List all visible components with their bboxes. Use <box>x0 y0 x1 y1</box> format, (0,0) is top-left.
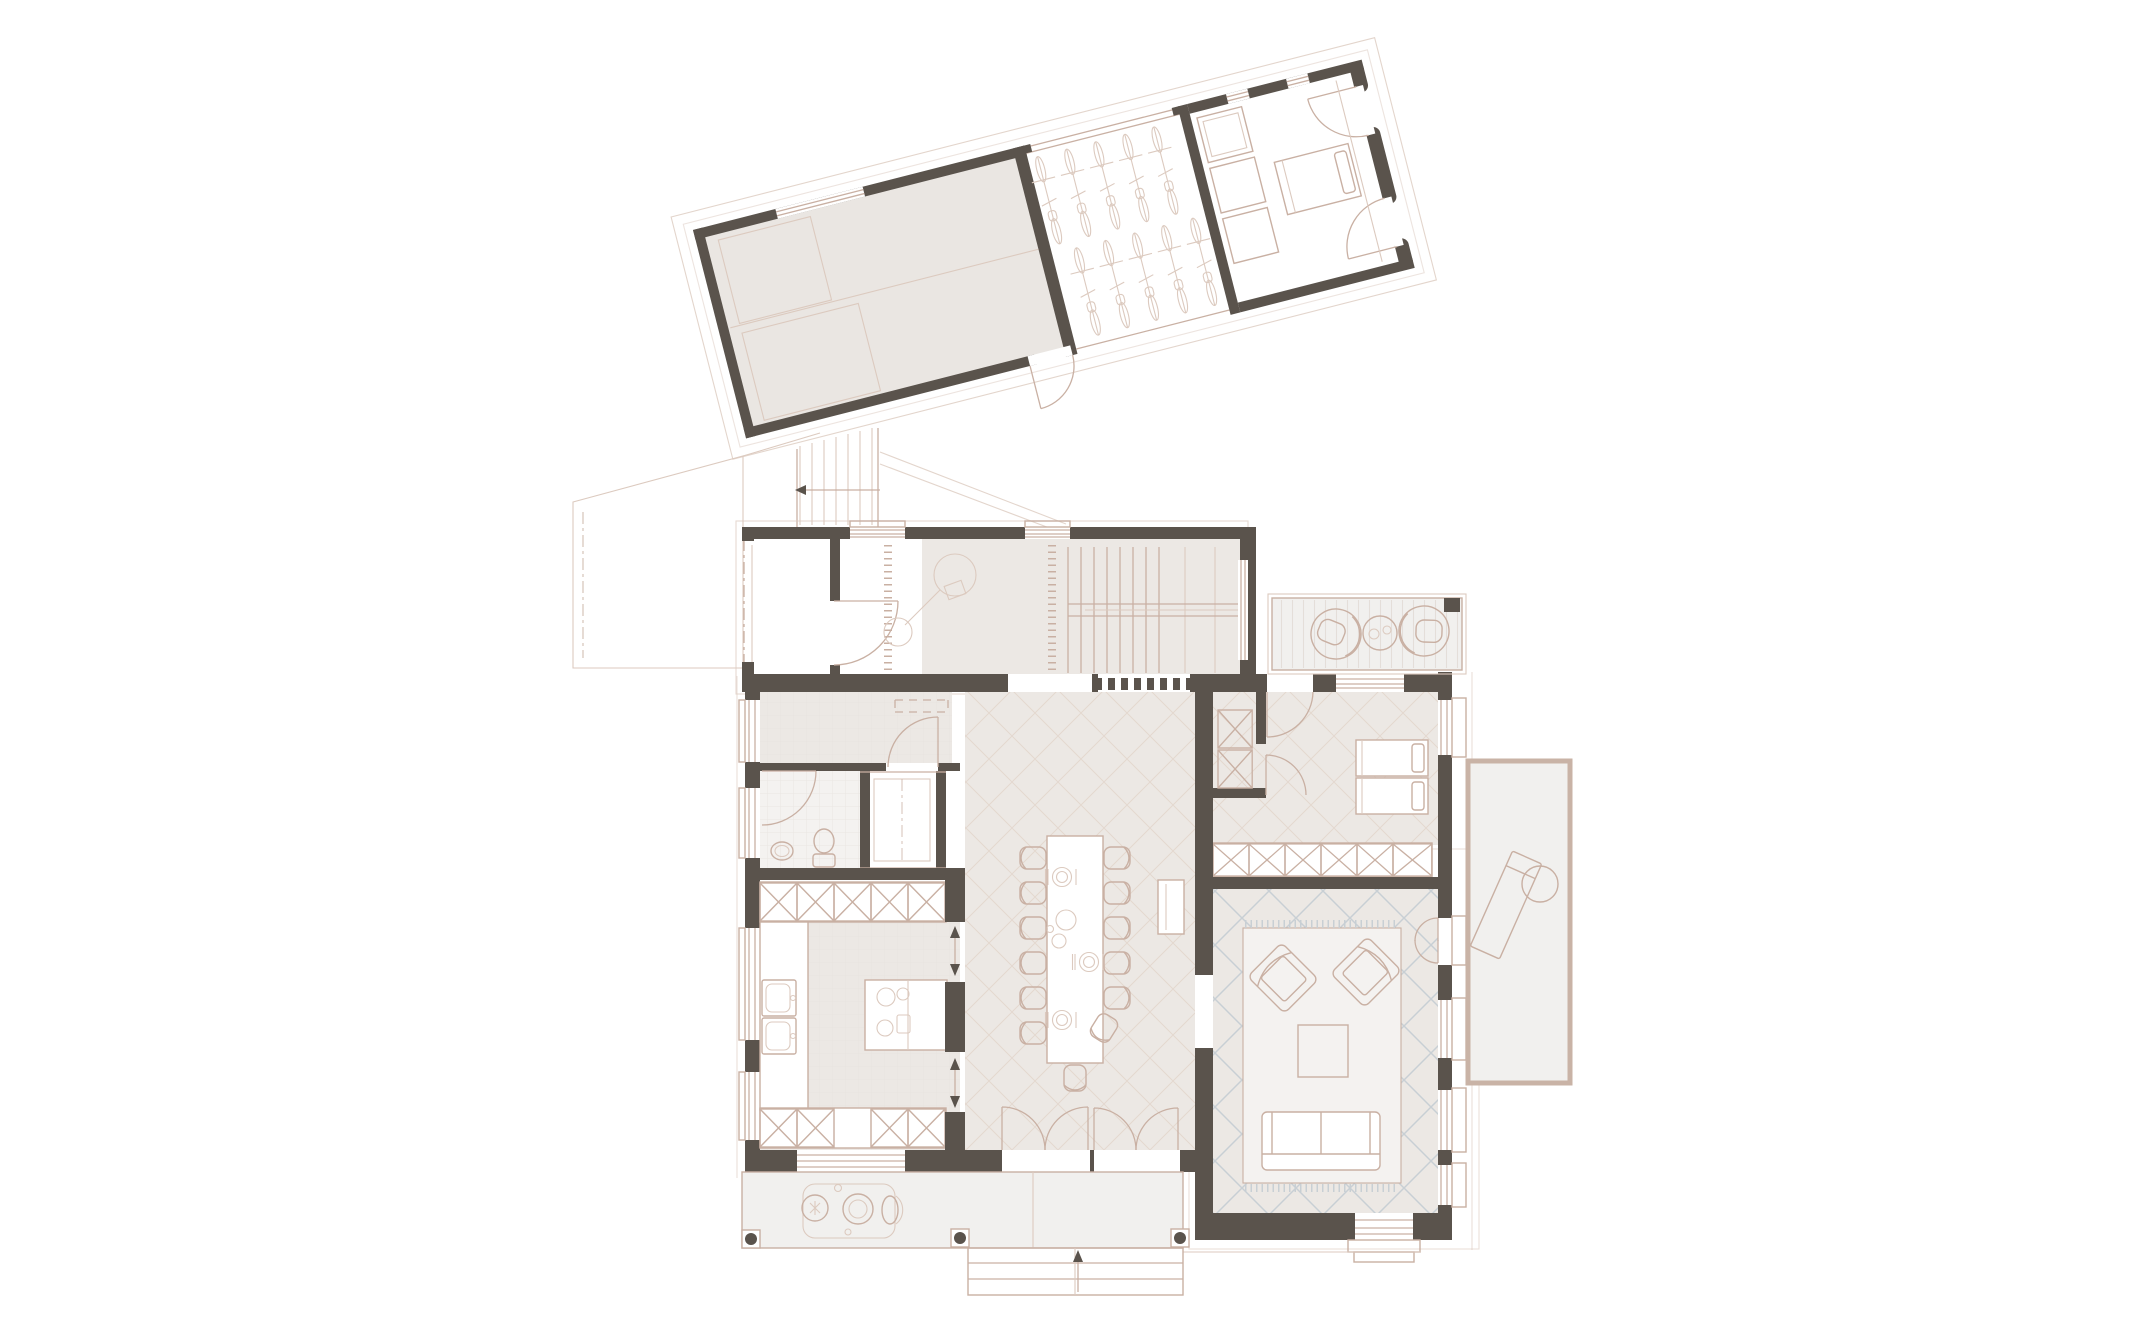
south-veranda <box>742 1172 1189 1295</box>
veranda-steps <box>968 1248 1183 1295</box>
bicycle <box>1084 139 1129 232</box>
shelf <box>1223 207 1279 263</box>
bicycle <box>1113 131 1158 224</box>
technical-shaft <box>860 771 946 869</box>
dining-hall <box>965 692 1195 1150</box>
base-cabinet-row <box>760 1108 946 1148</box>
cooking-island <box>865 980 947 1050</box>
bicycle <box>1055 146 1100 239</box>
floor-plan-page <box>0 0 2143 1337</box>
living-room <box>1183 889 1452 1262</box>
northeast-deck <box>1268 594 1466 674</box>
bicycle <box>1123 230 1168 323</box>
entry-porch <box>742 527 830 676</box>
living-room-steps <box>1348 1240 1420 1262</box>
bicycle <box>1152 223 1197 316</box>
radiator-console <box>1158 880 1184 934</box>
wardrobe-row <box>1213 843 1432 877</box>
exterior-stair <box>795 428 1066 532</box>
veranda-post <box>742 1230 760 1248</box>
bed <box>1274 144 1361 215</box>
west-wall <box>739 676 760 1172</box>
ribbon-window <box>1098 674 1190 692</box>
guest-bed <box>1356 778 1428 814</box>
veranda-post <box>1171 1229 1189 1247</box>
bathroom <box>760 771 860 868</box>
kitchen <box>760 868 965 1150</box>
east-terrace <box>1468 761 1570 1083</box>
entry-wing <box>742 521 1256 692</box>
storage-room <box>760 692 960 771</box>
bicycle <box>1142 124 1187 217</box>
guest-room <box>1213 692 1438 877</box>
tall-cabinet-row <box>760 882 946 922</box>
shelf <box>1197 107 1253 163</box>
guest-bed <box>1356 740 1428 776</box>
shelf <box>1210 157 1266 213</box>
annex-building <box>671 38 1443 486</box>
sofa <box>1262 1112 1380 1170</box>
veranda-post <box>951 1229 969 1247</box>
floor-plan-canvas <box>0 0 2143 1337</box>
bicycle <box>1094 238 1139 331</box>
bicycle <box>1065 245 1110 338</box>
